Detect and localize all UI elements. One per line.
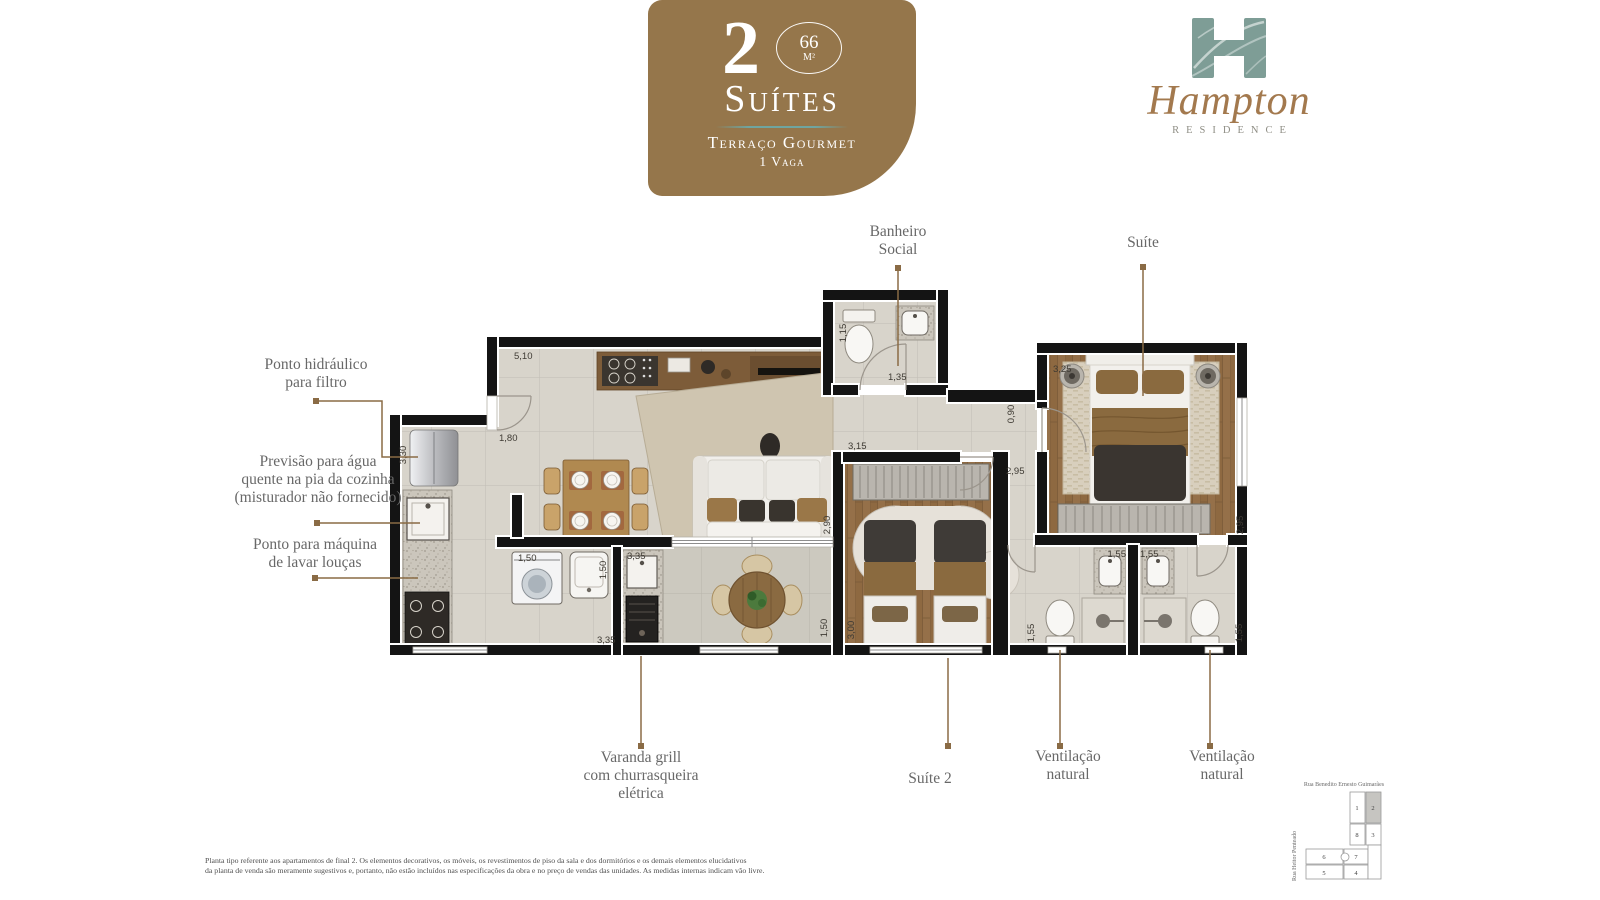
keyplan-building xyxy=(1306,792,1381,879)
dim-bath2-toilet: 1,55 xyxy=(1234,624,1245,643)
suite1-wardrobe xyxy=(1058,504,1210,534)
sofa-pillow xyxy=(769,500,795,522)
label-previsao-agua: Previsão para água xyxy=(259,453,376,470)
wc-toilet xyxy=(845,325,873,363)
suite2-wardrobe xyxy=(853,464,989,500)
dim-living-top: 5,10 xyxy=(514,351,533,362)
dim-grill-bottom: 3,35 xyxy=(597,635,616,646)
svg-text:quente na pia da cozinha: quente na pia da cozinha xyxy=(241,471,394,488)
keyplan-street-top: Rua Benedito Ernesto Guimarães xyxy=(1304,782,1385,788)
dim-washer: 1,50 xyxy=(518,553,537,564)
svg-text:3: 3 xyxy=(1371,832,1374,839)
svg-text:8: 8 xyxy=(1355,832,1358,839)
leader-varanda-grill xyxy=(638,656,644,749)
label-ventilacao-1: Ventilação xyxy=(1035,748,1101,765)
svg-text:5: 5 xyxy=(1322,870,1325,877)
keyplan-core xyxy=(1368,845,1381,879)
disclaimer-line-1: Planta tipo referente aos apartamentos d… xyxy=(205,856,764,866)
leader-ventilacao-2 xyxy=(1207,650,1213,749)
kitchen-fixtures xyxy=(403,430,458,645)
svg-text:Social: Social xyxy=(879,241,918,258)
keyplan-street-left: Rua Heitor Penteado xyxy=(1292,831,1298,881)
label-suite2: Suíte 2 xyxy=(908,770,952,787)
label-ventilacao-2: Ventilação xyxy=(1189,748,1255,765)
grill-counter xyxy=(621,550,663,648)
svg-text:natural: natural xyxy=(1200,766,1243,783)
svg-text:para filtro: para filtro xyxy=(285,374,347,391)
dim-suite2-top: 3,15 xyxy=(848,441,867,452)
leader-ventilacao-1 xyxy=(1057,650,1063,749)
sofa-pillow xyxy=(707,498,737,522)
dim-laundry-right: 1,50 xyxy=(598,561,609,580)
svg-text:de lavar louças: de lavar louças xyxy=(269,554,362,571)
label-suite: Suíte xyxy=(1127,234,1159,251)
dim-grill-top: 3,35 xyxy=(627,551,646,562)
dim-bath2-sink: 1,55 xyxy=(1140,549,1159,560)
keyplan-elevator xyxy=(1341,853,1349,861)
dim-entry: 1,80 xyxy=(499,433,518,444)
dim-terrace-right: 1,50 xyxy=(819,619,830,638)
dim-hall-width: 0,90 xyxy=(1006,405,1017,424)
svg-text:2: 2 xyxy=(1371,805,1374,812)
label-ponto-maquina: Ponto para máquina xyxy=(253,536,377,553)
label-ponto-hidraulico: Ponto hidráulico xyxy=(265,356,368,373)
dim-bath1-sink: 1,55 xyxy=(1108,549,1127,560)
dim-kitchen-left: 3,30 xyxy=(398,446,409,465)
leader-suite2 xyxy=(945,658,951,749)
terrace-slider xyxy=(672,537,833,547)
sofa-pillow xyxy=(739,500,765,522)
suite1-window xyxy=(1237,398,1247,486)
suite2-bed-2 xyxy=(934,520,986,644)
dim-suite1-top: 3,25 xyxy=(1053,364,1072,375)
dim-suite2-door: 2,95 xyxy=(1006,466,1025,477)
dim-suite1-right: 2,95 xyxy=(1235,516,1246,535)
dim-suite2-left: 3,00 xyxy=(846,621,857,640)
floor-plan-page: 2 66 M² Suítes Terraço Gourmet 1 Vaga Ha… xyxy=(0,0,1600,900)
label-banheiro-social: Banheiro xyxy=(870,223,927,240)
suite2-bed-1 xyxy=(864,520,916,644)
bath2-toilet xyxy=(1191,600,1219,636)
svg-text:elétrica: elétrica xyxy=(618,785,664,802)
suite1-bed xyxy=(1086,354,1194,507)
suite1-furniture xyxy=(1058,354,1220,534)
keyplan: Rua Benedito Ernesto Guimarães Rua Heito… xyxy=(1278,756,1390,888)
dim-living-right: 2,90 xyxy=(822,516,833,535)
label-varanda-grill: Varanda grill xyxy=(601,749,681,766)
svg-text:(misturador não fornecido): (misturador não fornecido) xyxy=(235,489,402,506)
svg-text:1: 1 xyxy=(1355,805,1358,812)
bath1-toilet xyxy=(1046,600,1074,636)
living-set xyxy=(636,372,835,544)
stove xyxy=(405,592,449,644)
dim-bath1-toilet: 1,55 xyxy=(1026,624,1037,643)
disclaimer: Planta tipo referente aos apartamentos d… xyxy=(205,856,764,875)
disclaimer-line-2: da planta de venda são meramente sugesti… xyxy=(205,866,764,876)
dim-wc-width: 1,15 xyxy=(838,324,849,343)
svg-text:com churrasqueira: com churrasqueira xyxy=(584,767,699,784)
dim-wc-door: 1,35 xyxy=(888,372,907,383)
svg-text:natural: natural xyxy=(1046,766,1089,783)
